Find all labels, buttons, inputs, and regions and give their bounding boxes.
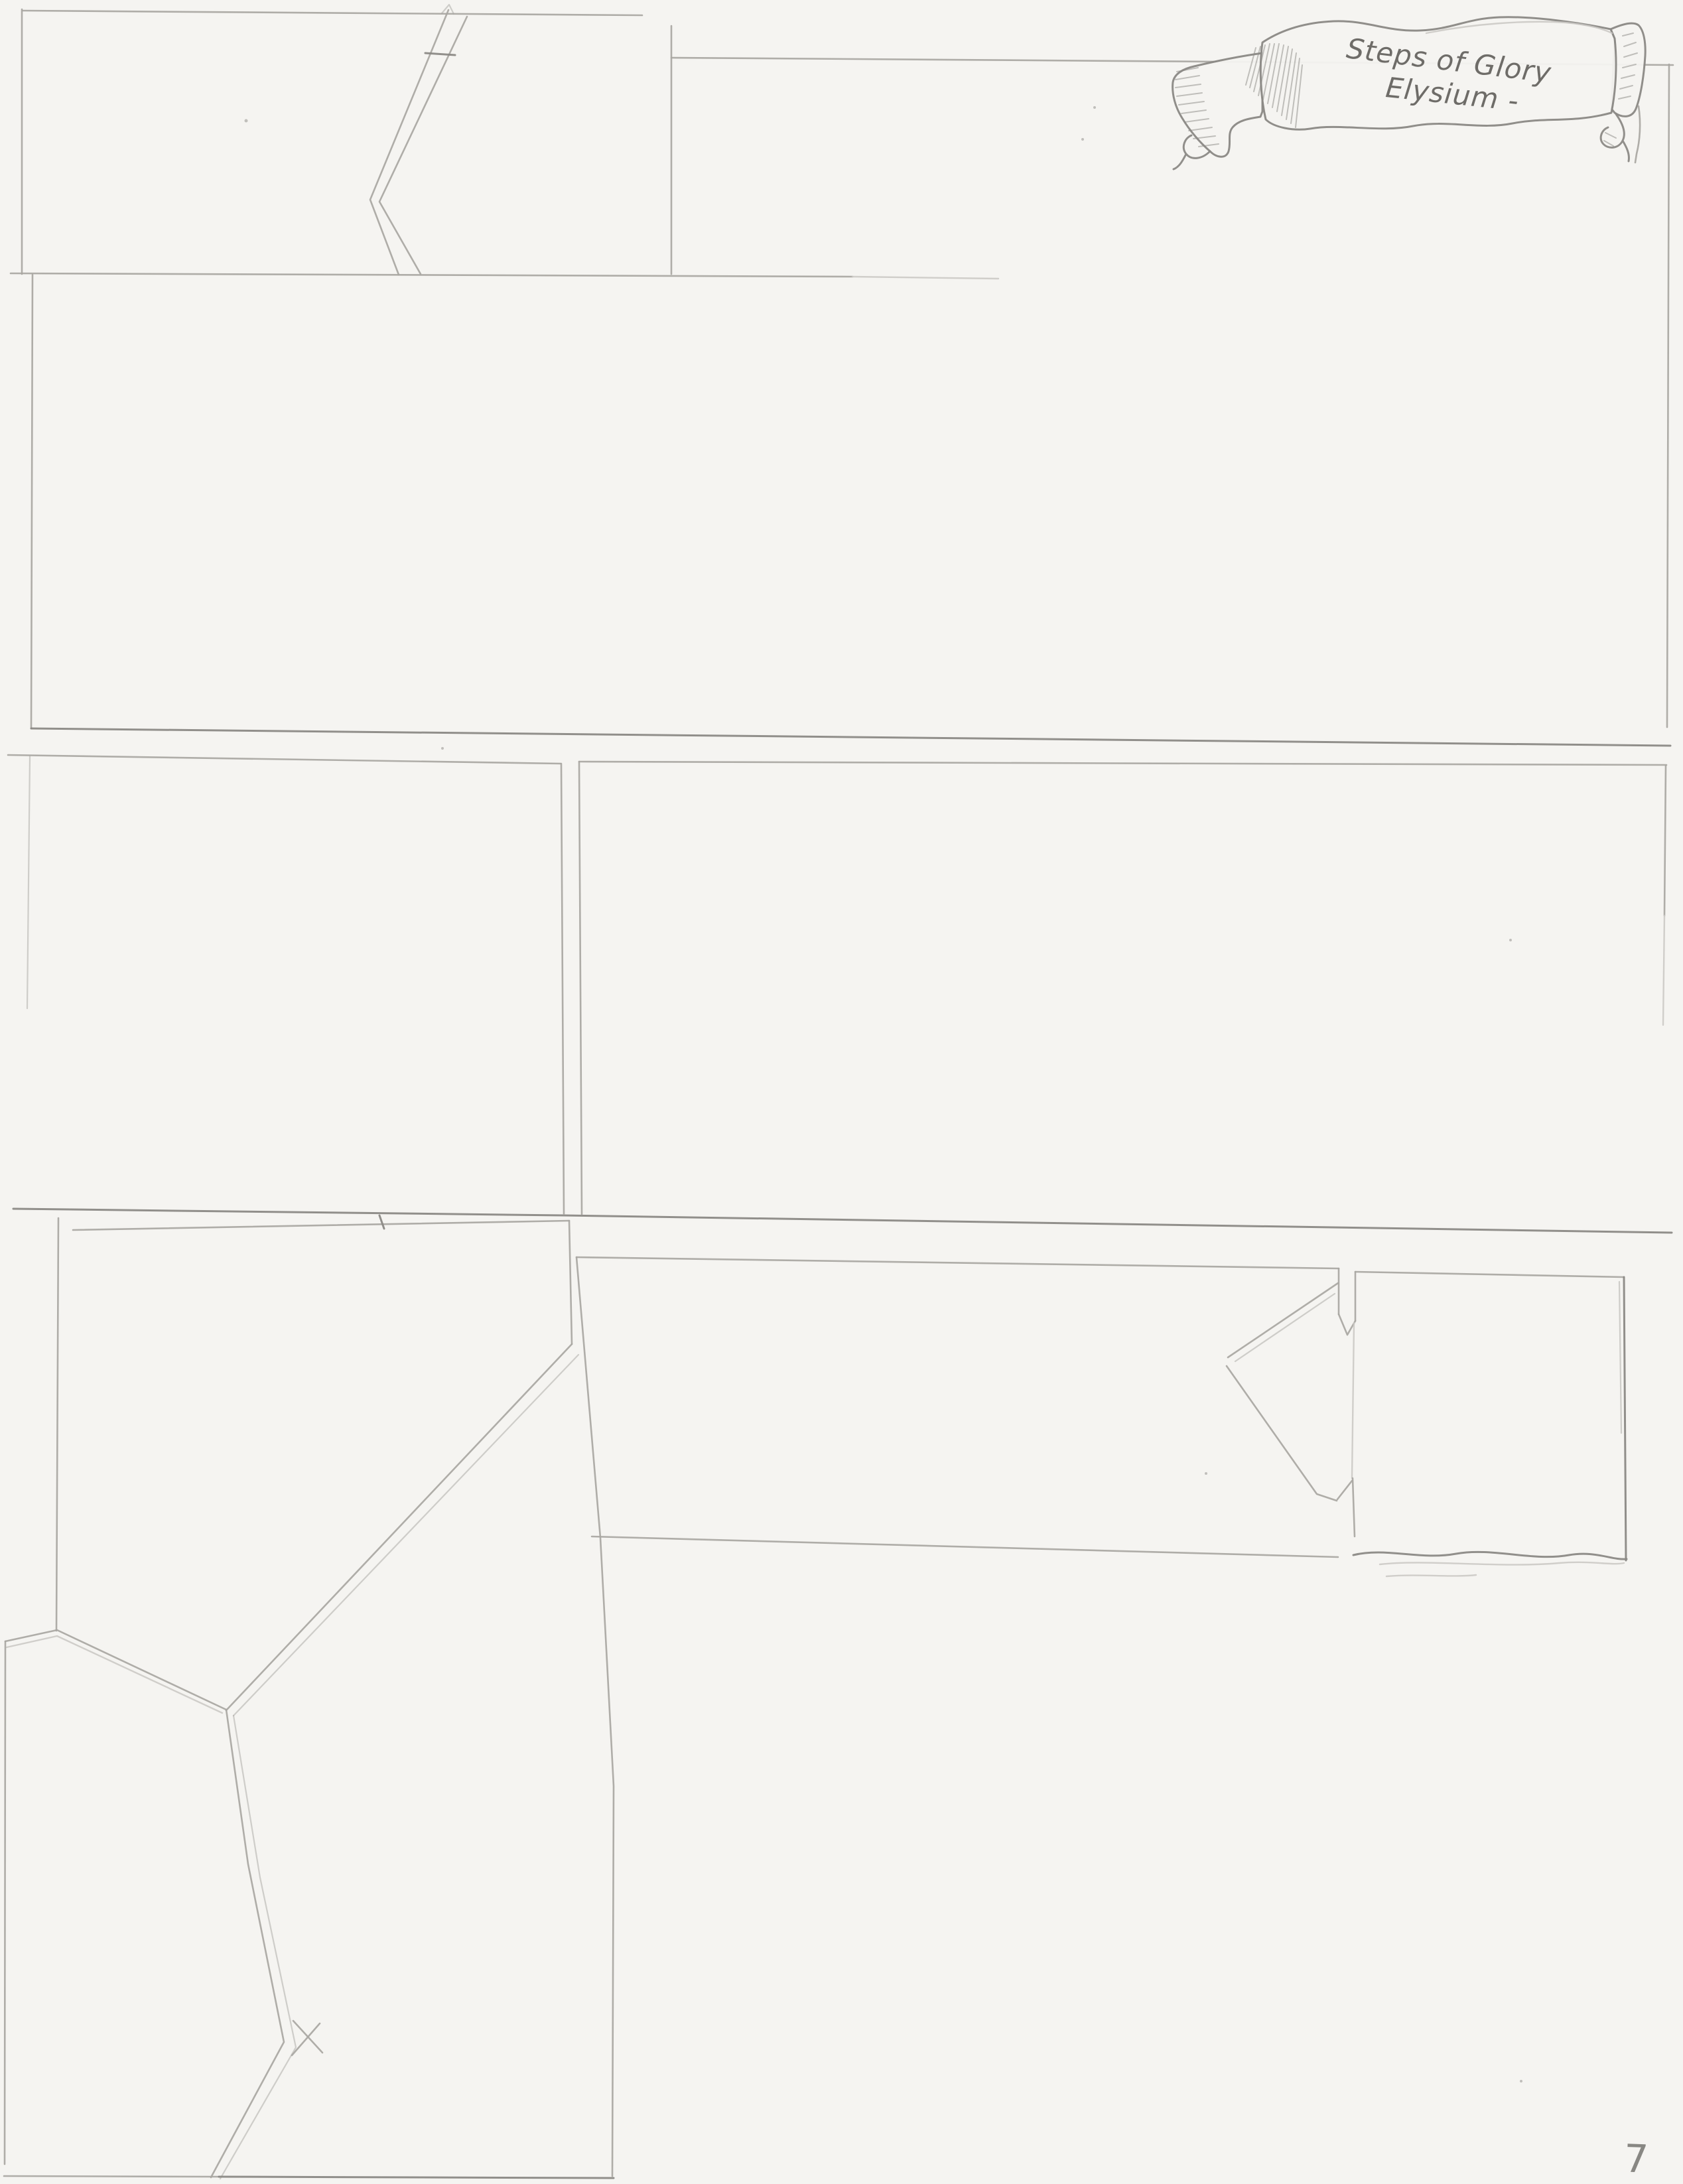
row2-bottom-border bbox=[31, 728, 1670, 746]
row3-right-panel-top-border bbox=[579, 762, 1666, 765]
polygon-top-edge bbox=[5, 1630, 226, 1710]
arrow-right-faint-vertical bbox=[1352, 1323, 1354, 1478]
row4-left-panel-left-border bbox=[56, 1218, 58, 1631]
row2-right-border bbox=[1667, 64, 1669, 727]
row4-diagonal-2 bbox=[234, 1355, 578, 1716]
row3-bottom-border bbox=[13, 1209, 1672, 1233]
row2-left-border bbox=[31, 275, 33, 728]
arrow-lower-hook bbox=[1337, 1481, 1352, 1499]
page-bottom-line-right bbox=[219, 2177, 614, 2178]
row3-right-panel-right-border bbox=[1664, 766, 1666, 916]
panel-row4-left-borders bbox=[56, 1215, 578, 1716]
row3-divider-left-line bbox=[561, 764, 564, 1214]
arrow-upper-diagonal bbox=[1228, 1283, 1338, 1357]
arrow-lower-vertical bbox=[1353, 1478, 1355, 1536]
polygon-right-edge-double bbox=[220, 1716, 296, 2179]
scan-edge-right-outer bbox=[1679, 0, 1683, 2184]
row4-right-panel-bottom-squiggle-3 bbox=[1386, 1575, 1476, 1576]
row4-left-panel-right-border bbox=[569, 1221, 572, 1344]
row4-right-panel-right-border bbox=[1624, 1277, 1626, 1560]
row4-right-panel-bottom-squiggle-1 bbox=[1353, 1552, 1627, 1559]
arrow-lower-diagonal bbox=[1227, 1366, 1337, 1501]
bottom-left-polygon-borders bbox=[4, 1630, 614, 2179]
row4-right-panel-left-border bbox=[576, 1257, 614, 2176]
pencil-sketch-layer bbox=[0, 0, 1683, 2184]
row3-right-panel-right-border-fade bbox=[1663, 916, 1664, 1025]
panel-row4-right-borders bbox=[576, 1257, 1627, 2176]
page-number: 7 bbox=[1623, 2136, 1649, 2181]
polygon-left-edge bbox=[5, 1641, 5, 2164]
arrow-upper-diagonal-double bbox=[1235, 1294, 1335, 1361]
polygon-right-edge bbox=[211, 1710, 284, 2177]
row1-top-border bbox=[23, 11, 642, 15]
row4-right-panel-top-border-left bbox=[576, 1257, 1339, 1268]
row4-diagonal-1 bbox=[226, 1344, 572, 1710]
row3-left-panel-left-border bbox=[27, 756, 30, 1008]
row4-right-panel-right-border-double bbox=[1619, 1282, 1621, 1433]
arrow-notch-v bbox=[1339, 1314, 1355, 1335]
row1-bottom-border bbox=[11, 273, 852, 277]
row4-right-panel-bottom-squiggle-2 bbox=[1380, 1562, 1624, 1565]
row3-left-panel-top-border bbox=[8, 755, 561, 764]
scan-artifacts bbox=[0, 0, 1683, 2184]
row4-left-panel-top-border bbox=[73, 1221, 569, 1230]
row4-left-panel-tick-mark bbox=[379, 1215, 384, 1229]
scan-shadow-bottom bbox=[0, 2177, 318, 2184]
panel-row2-borders bbox=[31, 275, 1670, 746]
row3-divider-right-line bbox=[579, 762, 582, 1214]
row1-bottom-border-faint bbox=[852, 277, 998, 279]
pencil-specks bbox=[245, 106, 1523, 2082]
page-bottom-line-left bbox=[4, 2176, 219, 2177]
arrow-shape-sketch bbox=[1227, 1268, 1355, 1536]
comic-page-scan: Steps of Glory Elysium - 7 bbox=[0, 0, 1683, 2184]
scan-edge-left bbox=[0, 0, 6, 1526]
scan-line-bottom bbox=[305, 2181, 1683, 2183]
row4-right-panel-bottom-border bbox=[592, 1536, 1338, 1557]
polygon-top-edge-double bbox=[7, 1636, 222, 1713]
row4-right-panel-top-border-right bbox=[1355, 1272, 1624, 1277]
polygon-x-scribble-2 bbox=[292, 2023, 320, 2055]
panel-row1-chevron-divider bbox=[370, 5, 467, 275]
panel-row3-borders bbox=[8, 755, 1672, 1233]
chevron-line-a bbox=[370, 10, 448, 275]
scan-edge-right bbox=[1674, 0, 1679, 2184]
banner-right-thread bbox=[1635, 106, 1640, 163]
